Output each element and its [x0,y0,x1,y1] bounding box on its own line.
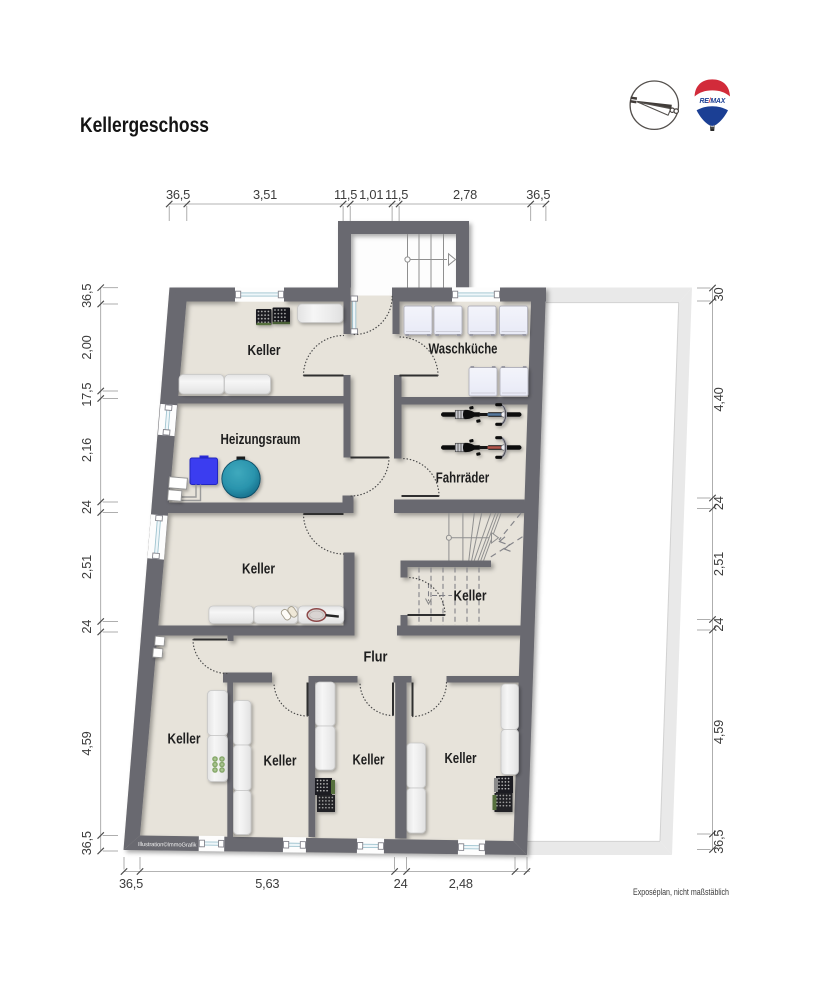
svg-text:17,5: 17,5 [79,383,94,407]
svg-text:Heizungsraum: Heizungsraum [221,432,301,448]
svg-text:36,5: 36,5 [79,831,94,855]
svg-text:30: 30 [711,288,726,302]
svg-text:36,5: 36,5 [166,187,190,202]
svg-text:24: 24 [711,618,726,632]
svg-text:Keller: Keller [353,753,385,769]
svg-text:1,01: 1,01 [359,187,383,202]
svg-text:11,5: 11,5 [385,187,408,202]
svg-text:24: 24 [711,496,726,510]
svg-text:24: 24 [394,876,408,891]
svg-text:2,78: 2,78 [453,187,477,202]
svg-text:RE/MAX: RE/MAX [699,98,725,105]
svg-text:36,5: 36,5 [711,830,726,854]
svg-text:4,59: 4,59 [711,720,726,744]
svg-text:Waschküche: Waschküche [429,342,498,358]
svg-text:2,00: 2,00 [79,335,94,359]
svg-text:36,5: 36,5 [79,284,94,308]
svg-text:11,5: 11,5 [334,187,357,202]
svg-text:2,51: 2,51 [711,552,726,576]
svg-text:Exposéplan, nicht maßstäblich: Exposéplan, nicht maßstäblich [633,887,729,897]
svg-text:Keller: Keller [242,562,275,578]
svg-text:36,5: 36,5 [526,187,550,202]
svg-text:5,63: 5,63 [255,876,279,891]
svg-text:24: 24 [79,620,94,634]
svg-text:Keller: Keller [454,589,487,605]
svg-text:24: 24 [79,500,94,514]
svg-text:4,59: 4,59 [79,731,94,755]
svg-text:2,48: 2,48 [449,876,473,891]
svg-text:3,51: 3,51 [253,187,277,202]
svg-text:Keller: Keller [264,754,297,770]
svg-text:Illustration©ImmoGrafik: Illustration©ImmoGrafik [138,841,197,849]
svg-text:2,51: 2,51 [79,555,94,579]
svg-text:Fahrräder: Fahrräder [436,471,490,487]
svg-text:4,40: 4,40 [711,387,726,411]
svg-text:Keller: Keller [168,732,201,748]
svg-text:Flur: Flur [364,650,388,666]
svg-text:Keller: Keller [445,751,477,767]
svg-text:2,16: 2,16 [79,438,94,462]
svg-text:Keller: Keller [248,343,281,359]
svg-text:36,5: 36,5 [119,876,143,891]
svg-text:Kellergeschoss: Kellergeschoss [80,113,209,137]
